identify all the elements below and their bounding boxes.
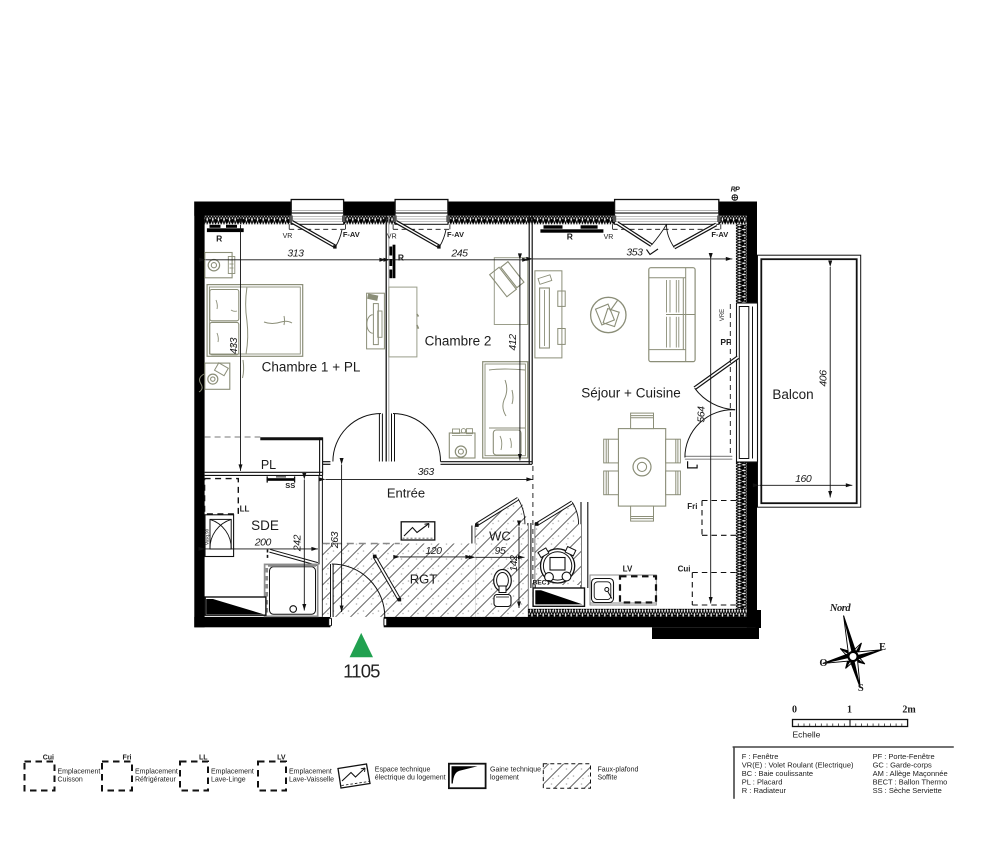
svg-text:Séjour + Cuisine: Séjour + Cuisine — [581, 386, 680, 401]
svg-text:BECT: BECT — [533, 580, 551, 587]
svg-text:363: 363 — [418, 466, 435, 478]
svg-text:Espace technique: Espace technique — [375, 767, 431, 774]
svg-text:R: R — [216, 234, 222, 244]
svg-text:2m: 2m — [902, 705, 916, 716]
svg-text:WC: WC — [489, 529, 511, 544]
svg-text:logement: logement — [490, 775, 519, 782]
svg-text:Cui: Cui — [43, 755, 54, 762]
svg-text:Fri: Fri — [687, 502, 697, 511]
svg-text:LL: LL — [240, 505, 250, 514]
svg-text:Réfrigérateur: Réfrigérateur — [135, 777, 177, 784]
svg-text:PL: PL — [261, 458, 276, 472]
svg-text:RGT: RGT — [410, 572, 438, 587]
svg-text:Fri: Fri — [123, 755, 132, 762]
svg-text:313: 313 — [287, 248, 304, 260]
svg-text:412: 412 — [507, 334, 519, 351]
svg-text:LV: LV — [277, 755, 286, 762]
svg-text:RP: RP — [731, 187, 741, 194]
svg-text:245: 245 — [450, 248, 468, 260]
svg-text:Lave-Vaisselle: Lave-Vaisselle — [289, 777, 334, 784]
svg-text:F-AV: F-AV — [711, 230, 728, 239]
svg-text:R: R — [567, 232, 573, 242]
svg-text:F-AV: F-AV — [447, 230, 464, 239]
svg-text:Cuisson: Cuisson — [58, 777, 83, 784]
svg-text:263: 263 — [329, 531, 341, 549]
svg-text:564: 564 — [696, 406, 708, 423]
svg-text:Chambre 2: Chambre 2 — [425, 334, 492, 349]
svg-text:Lave-Linge: Lave-Linge — [211, 777, 246, 784]
svg-text:F-AV: F-AV — [343, 230, 360, 239]
svg-text:0: 0 — [792, 705, 797, 716]
svg-text:SDE: SDE — [251, 518, 279, 533]
svg-text:Entrée: Entrée — [387, 486, 425, 501]
svg-text:VR: VR — [283, 233, 293, 240]
svg-text:Vasq.90: Vasq.90 — [205, 528, 210, 545]
svg-text:Nord: Nord — [829, 603, 852, 614]
svg-text:LV: LV — [623, 565, 633, 574]
svg-text:PF: PF — [720, 337, 731, 347]
svg-text:Cui: Cui — [678, 565, 691, 574]
svg-text:Emplacement: Emplacement — [58, 769, 101, 776]
svg-text:Soffite: Soffite — [598, 775, 618, 782]
svg-text:1105: 1105 — [343, 660, 380, 681]
svg-text:VR: VR — [387, 234, 397, 241]
svg-text:95: 95 — [495, 545, 506, 557]
svg-text:Chambre 1 + PL: Chambre 1 + PL — [262, 360, 361, 375]
svg-text:O: O — [819, 658, 827, 669]
svg-text:SS : Sèche Serviette: SS : Sèche Serviette — [873, 786, 942, 795]
svg-text:LL: LL — [199, 755, 208, 762]
svg-text:électrique du logement: électrique du logement — [375, 775, 446, 782]
svg-text:Balcon: Balcon — [772, 387, 813, 402]
svg-text:VRE: VRE — [720, 309, 726, 321]
svg-text:Emplacement: Emplacement — [211, 769, 254, 776]
svg-text:Faux-plafond: Faux-plafond — [598, 767, 639, 774]
svg-text:1: 1 — [847, 705, 852, 716]
svg-text:SS: SS — [285, 481, 295, 490]
svg-text:Echelle: Echelle — [793, 730, 821, 740]
svg-text:Gaine technique: Gaine technique — [490, 767, 541, 774]
svg-text:Emplacement: Emplacement — [135, 769, 178, 776]
svg-text:VR: VR — [604, 234, 614, 241]
svg-text:433: 433 — [228, 337, 240, 354]
svg-text:120: 120 — [425, 545, 442, 557]
svg-text:142: 142 — [508, 555, 520, 572]
svg-text:Emplacement: Emplacement — [289, 769, 332, 776]
svg-text:S: S — [858, 683, 864, 694]
svg-text:R : Radiateur: R : Radiateur — [742, 786, 787, 795]
svg-text:200: 200 — [254, 537, 272, 549]
svg-text:E: E — [879, 642, 886, 653]
svg-text:160: 160 — [795, 473, 812, 485]
svg-text:R: R — [398, 253, 404, 263]
svg-text:406: 406 — [817, 370, 829, 387]
svg-text:353: 353 — [626, 247, 643, 259]
svg-text:242: 242 — [292, 534, 304, 552]
